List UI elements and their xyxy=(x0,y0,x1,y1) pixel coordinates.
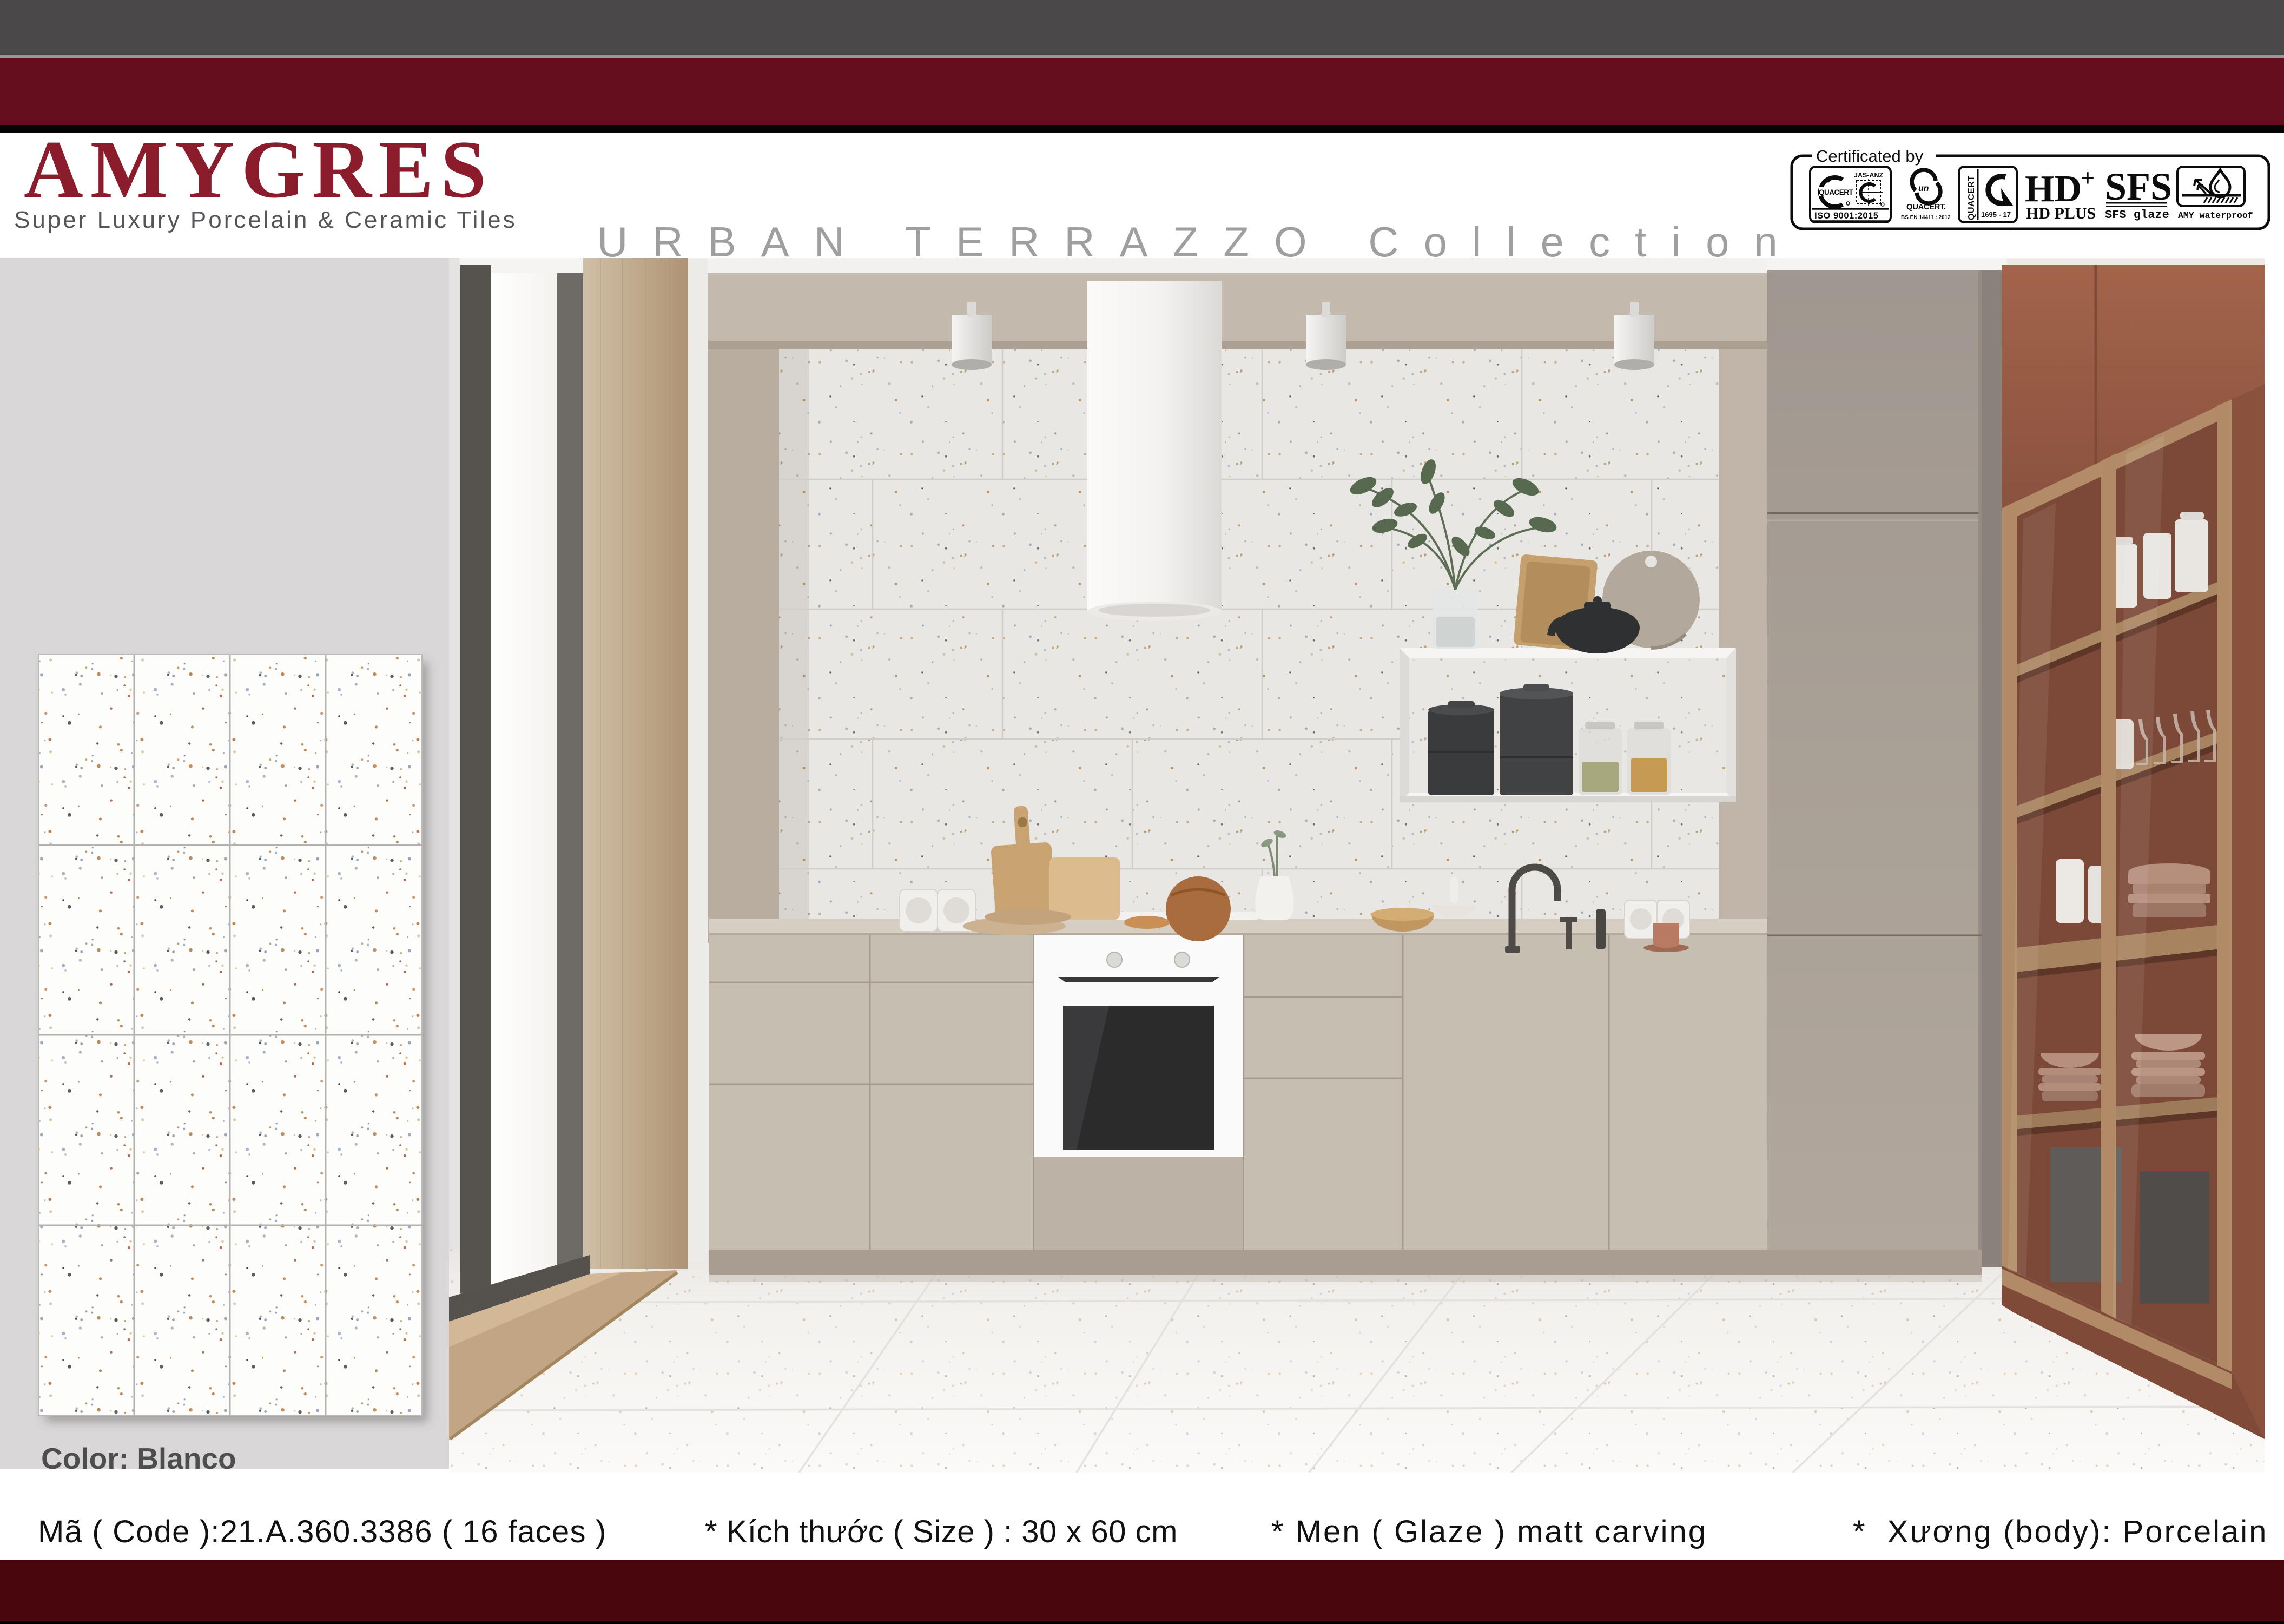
svg-text:BS EN 14411 : 2012: BS EN 14411 : 2012 xyxy=(1901,215,1951,221)
svg-text:+: + xyxy=(2081,164,2095,192)
svg-text:un: un xyxy=(1918,184,1929,193)
svg-text:Certificated by: Certificated by xyxy=(1816,147,1924,166)
svg-text:ISO 9001:2015: ISO 9001:2015 xyxy=(1814,211,1878,221)
svg-text:QUACERT: QUACERT xyxy=(1819,188,1854,196)
svg-text:HD: HD xyxy=(2025,168,2082,210)
svg-text:HD PLUS: HD PLUS xyxy=(2026,204,2096,222)
svg-text:QUACERT.: QUACERT. xyxy=(1906,202,1946,212)
svg-text:SFS glaze: SFS glaze xyxy=(2105,208,2169,222)
svg-text:1695 - 17: 1695 - 17 xyxy=(1981,210,2011,219)
svg-text:JAS-ANZ: JAS-ANZ xyxy=(1854,171,1884,179)
svg-text:AMY waterproof: AMY waterproof xyxy=(2178,210,2253,221)
svg-text:QUACERT: QUACERT xyxy=(1967,175,1976,220)
svg-text:SFS: SFS xyxy=(2105,165,2172,208)
